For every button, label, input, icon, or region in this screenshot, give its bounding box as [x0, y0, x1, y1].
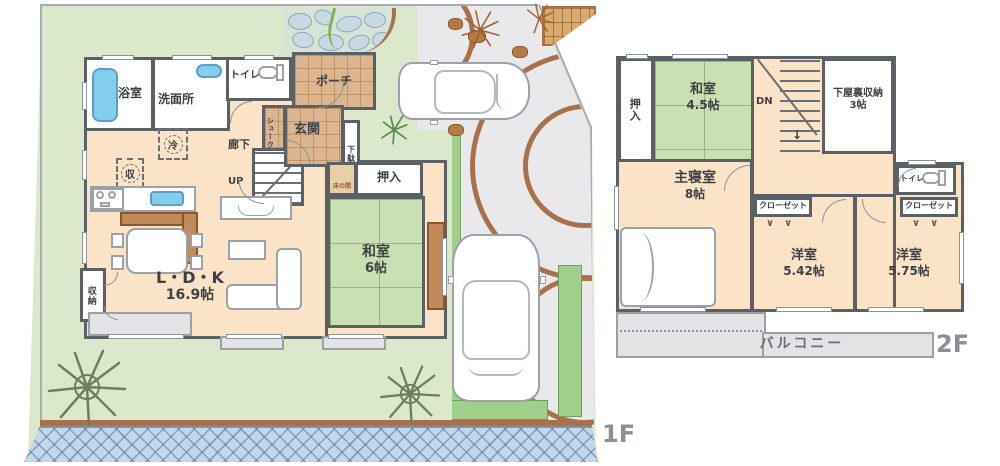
floor1-tag: 1F	[602, 420, 635, 448]
window	[776, 307, 832, 312]
tokonoma	[327, 162, 357, 196]
pond-stone	[291, 30, 315, 50]
washbasin-icon	[196, 64, 222, 78]
toilet-1f-label: トイレ	[230, 70, 260, 82]
car-cabin	[434, 70, 496, 114]
western-room-2-size: 5.75帖	[862, 264, 956, 278]
japanese-room-1f-size: 6帖	[340, 261, 412, 277]
tree-icon	[45, 345, 129, 429]
western-room-1-label: 洋室 5.42帖	[760, 248, 848, 278]
window	[172, 55, 212, 60]
dining-chair	[111, 255, 124, 270]
window	[614, 186, 619, 230]
tv-board-curve	[238, 206, 274, 216]
attic-storage-size: 3帖	[824, 100, 892, 112]
ldk-name: L・D・K	[140, 268, 240, 287]
pond-stone	[288, 13, 312, 30]
storage-1f-label: 収納	[85, 276, 96, 316]
sofa-back	[276, 248, 302, 310]
closet-2f-oshiire-label: 押入	[628, 82, 641, 138]
western-room-2-label: 洋室 5.75帖	[862, 248, 956, 278]
toilet-tank-icon	[938, 170, 946, 186]
japanese-room-2f-name: 和室	[662, 82, 744, 98]
floor2-tag: 2F	[936, 330, 969, 358]
car-icon	[452, 234, 540, 402]
stairs-dn-label: DN	[756, 96, 773, 108]
wall	[853, 197, 857, 312]
pantry-mark: 収	[116, 158, 144, 188]
attic-storage-name: 下屋裏収納	[824, 88, 892, 100]
site-boundary-top	[42, 4, 538, 6]
terrace	[88, 312, 192, 336]
closet-west-room-2-label: クローゼット	[902, 201, 956, 211]
attic-storage-label: 下屋裏収納 3帖	[824, 88, 892, 112]
ldk-label: L・D・K 16.9帖	[140, 268, 240, 304]
balcony-label: バルコニー	[742, 336, 862, 353]
car-icon	[398, 62, 530, 120]
stove-burner	[108, 191, 116, 199]
floor-plan-canvas: ポーチ 浴室 洗面所 トイレ 廊下 シュークローク UP 玄関 下駄箱 冷 収 …	[0, 0, 1000, 466]
garden-pond	[284, 8, 396, 54]
window	[672, 54, 728, 59]
closet-hanger-marks: ∨∨	[766, 218, 802, 229]
japanese-room-2f-label: 和室 4.5帖	[662, 82, 744, 112]
entrance-label: 玄関	[294, 122, 320, 138]
pond-stone	[364, 12, 386, 28]
window	[442, 238, 447, 296]
brown-tree-icon	[458, 8, 502, 52]
tree-icon	[378, 362, 442, 426]
toilet-tank-icon	[276, 64, 284, 81]
window	[82, 232, 87, 264]
tokonoma-label: 床の間	[327, 183, 357, 190]
japanese-room-1f-label: 和室 6帖	[340, 244, 412, 276]
toilet-icon	[258, 66, 278, 79]
stove-burner	[96, 191, 104, 199]
closet-hanger-marks: ∨∨	[912, 218, 948, 229]
bed-pillow-curve	[628, 233, 654, 301]
car-windshield	[468, 364, 524, 376]
window	[868, 307, 924, 312]
car-cabin	[462, 280, 530, 360]
western-room-2-name: 洋室	[862, 248, 956, 264]
wall	[750, 162, 754, 312]
stairs-2f-treads	[780, 60, 820, 160]
stove-grill	[100, 202, 110, 207]
car-mirror	[540, 276, 546, 284]
bathroom-label: 浴室	[118, 86, 142, 100]
stairs-down-arrow: ↓	[792, 128, 802, 142]
bathtub-icon	[92, 68, 118, 122]
dining-chair	[111, 233, 124, 248]
brown-tree-icon	[522, 2, 556, 36]
stepping-stone	[448, 124, 464, 136]
pantry-kanji: 収	[121, 164, 140, 183]
refrigerator-mark: 冷	[158, 128, 188, 160]
window	[959, 232, 964, 284]
window	[82, 150, 87, 180]
window	[108, 334, 184, 339]
road	[24, 426, 598, 462]
window	[102, 55, 134, 60]
japanese-room-1f-name: 和室	[340, 244, 412, 261]
car-mirror	[448, 276, 454, 284]
japanese-room-2f-size: 4.5帖	[662, 98, 744, 112]
refrigerator-kanji: 冷	[164, 135, 183, 154]
stepping-stone	[512, 46, 528, 58]
car-mirror	[430, 60, 438, 65]
kitchen-sink-icon	[150, 191, 184, 206]
car-mirror	[430, 120, 438, 125]
closet-west-room-1-label: クローゼット	[756, 201, 810, 211]
dining-chair	[190, 233, 203, 248]
window	[908, 160, 936, 165]
coffee-table	[228, 240, 266, 260]
window	[328, 334, 384, 339]
ldk-size: 16.9帖	[140, 287, 240, 304]
car-windshield	[496, 74, 506, 110]
site-boundary-left	[40, 4, 42, 424]
pond-stone	[372, 32, 392, 48]
closet-1f-label: 押入	[360, 170, 418, 184]
wall	[750, 194, 896, 197]
window	[640, 307, 706, 312]
window	[244, 55, 274, 60]
balcony-roofline	[620, 330, 762, 332]
window	[626, 54, 648, 59]
window	[226, 334, 282, 339]
western-room-1-name: 洋室	[760, 248, 848, 264]
planting-strip-right	[558, 265, 582, 417]
window	[82, 82, 87, 110]
washroom-label: 洗面所	[158, 92, 194, 106]
hallway-label: 廊下	[228, 138, 250, 151]
western-room-1-size: 5.42帖	[760, 264, 848, 278]
